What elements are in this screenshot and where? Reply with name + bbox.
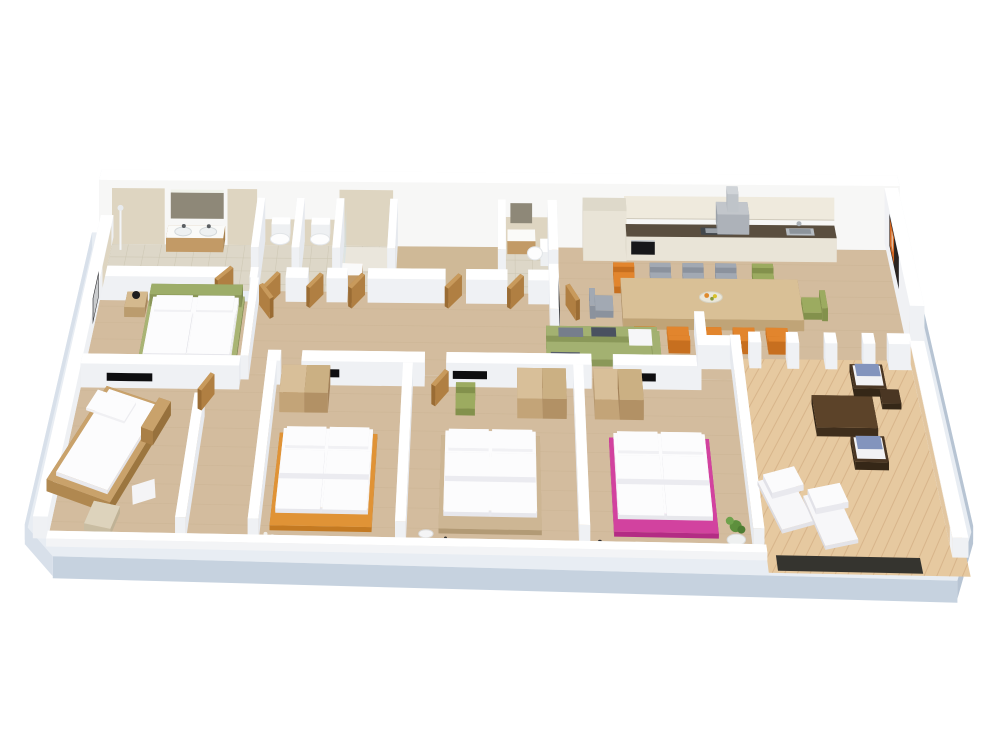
- deck-post-1: [748, 332, 761, 369]
- fruit-green: [710, 297, 714, 301]
- bedroom3-duvet-r: [662, 456, 712, 521]
- wc1-toilet-bowl: [270, 233, 289, 244]
- bedroom1-wardrobe-b: [304, 365, 330, 413]
- bedroom1-pillow-r: [328, 427, 369, 450]
- deck-doormat: [776, 555, 923, 574]
- bedroom1-wardrobe-a: [279, 365, 307, 413]
- small-bath-mirror: [510, 203, 532, 223]
- floorplan-canvas: [0, 0, 1000, 750]
- plant-foliage-c: [737, 526, 745, 534]
- master-duvet-left: [144, 312, 193, 359]
- bedroom1-pillow-l: [285, 426, 326, 449]
- sofa-cushion-dark: [591, 327, 616, 336]
- bath-mirror-light: [171, 190, 224, 193]
- dining-chair-west-end-seat: [595, 295, 614, 317]
- wicker-ottoman: [880, 389, 902, 409]
- bedroom2-duvet-l: [444, 452, 489, 516]
- bedroom2-magazine: [419, 530, 433, 538]
- bedroom2-duvet-r: [491, 453, 536, 517]
- bedroom3-wardrobe-a: [593, 369, 619, 420]
- bedroom3-wardrobe-b: [618, 369, 644, 420]
- bath-basin-right: [200, 227, 217, 236]
- bedroom1-duvet-r: [322, 450, 370, 514]
- bedroom3-pillow-r: [661, 432, 704, 455]
- bath-basin-left: [175, 227, 192, 236]
- wicker-chair-ne-pillow: [855, 364, 881, 377]
- deck-post-3: [824, 332, 838, 369]
- kitchen-sink-basin: [789, 229, 811, 234]
- bedroom2-pillow-r: [492, 429, 532, 452]
- floorplan-3d-render: [0, 0, 1000, 750]
- hall-north-wall-f: [466, 269, 508, 304]
- deck-wall-stub-east: [887, 333, 912, 370]
- fruit-orange: [704, 293, 709, 298]
- shower-wall-tile: [340, 190, 394, 246]
- wc2-toilet-bowl: [310, 234, 329, 245]
- master-south-wall: [81, 353, 241, 389]
- oven: [631, 242, 655, 255]
- shower-head: [118, 205, 124, 211]
- bedroom2-tv: [453, 371, 487, 379]
- bedroom1-duvet-l: [276, 450, 325, 514]
- plant-foliage-b: [726, 517, 734, 525]
- dining-chair-east-end-seat: [801, 297, 822, 319]
- fruit-bowl: [700, 292, 723, 303]
- bath-faucet-left: [182, 224, 186, 228]
- hall-north-wall-c: [286, 267, 309, 302]
- master-duvet-right: [187, 312, 235, 359]
- bedroom2-chair-seat: [456, 393, 476, 416]
- oven-handle: [631, 240, 655, 242]
- master-pillow-right: [196, 296, 235, 314]
- kitchen-tall-cabinet: [583, 198, 627, 262]
- bedroom2-wardrobe-a: [517, 368, 543, 419]
- master-lamp: [132, 291, 140, 299]
- dining-chair-west-end-back: [589, 288, 596, 319]
- bedroom3-duvet-l: [616, 455, 665, 520]
- dining-chair-near2-back: [668, 336, 690, 354]
- bedroom2-wardrobe-b: [542, 368, 567, 419]
- bath-faucet-right: [207, 224, 211, 228]
- sofa-throw-white: [628, 329, 652, 346]
- bath-mirror: [171, 193, 224, 219]
- wicker-coffee-table: [812, 395, 879, 437]
- master-pillow-left: [154, 295, 193, 313]
- bedroom2-pillow-l: [448, 429, 488, 452]
- wicker-chair-se-pillow: [856, 436, 883, 450]
- range-hood-chimney: [726, 186, 738, 212]
- hall-north-wall-d: [327, 268, 348, 303]
- deck-post-2: [786, 332, 799, 369]
- bunk-room-tv: [107, 373, 153, 382]
- hall-north-wall-e: [368, 268, 446, 303]
- bedroom3-pillow-l: [617, 431, 659, 454]
- dining-table: [621, 278, 805, 331]
- kitchen-faucet: [797, 221, 802, 226]
- sofa-cushion-gray: [558, 328, 583, 338]
- small-bath-toilet-bowl: [527, 247, 542, 260]
